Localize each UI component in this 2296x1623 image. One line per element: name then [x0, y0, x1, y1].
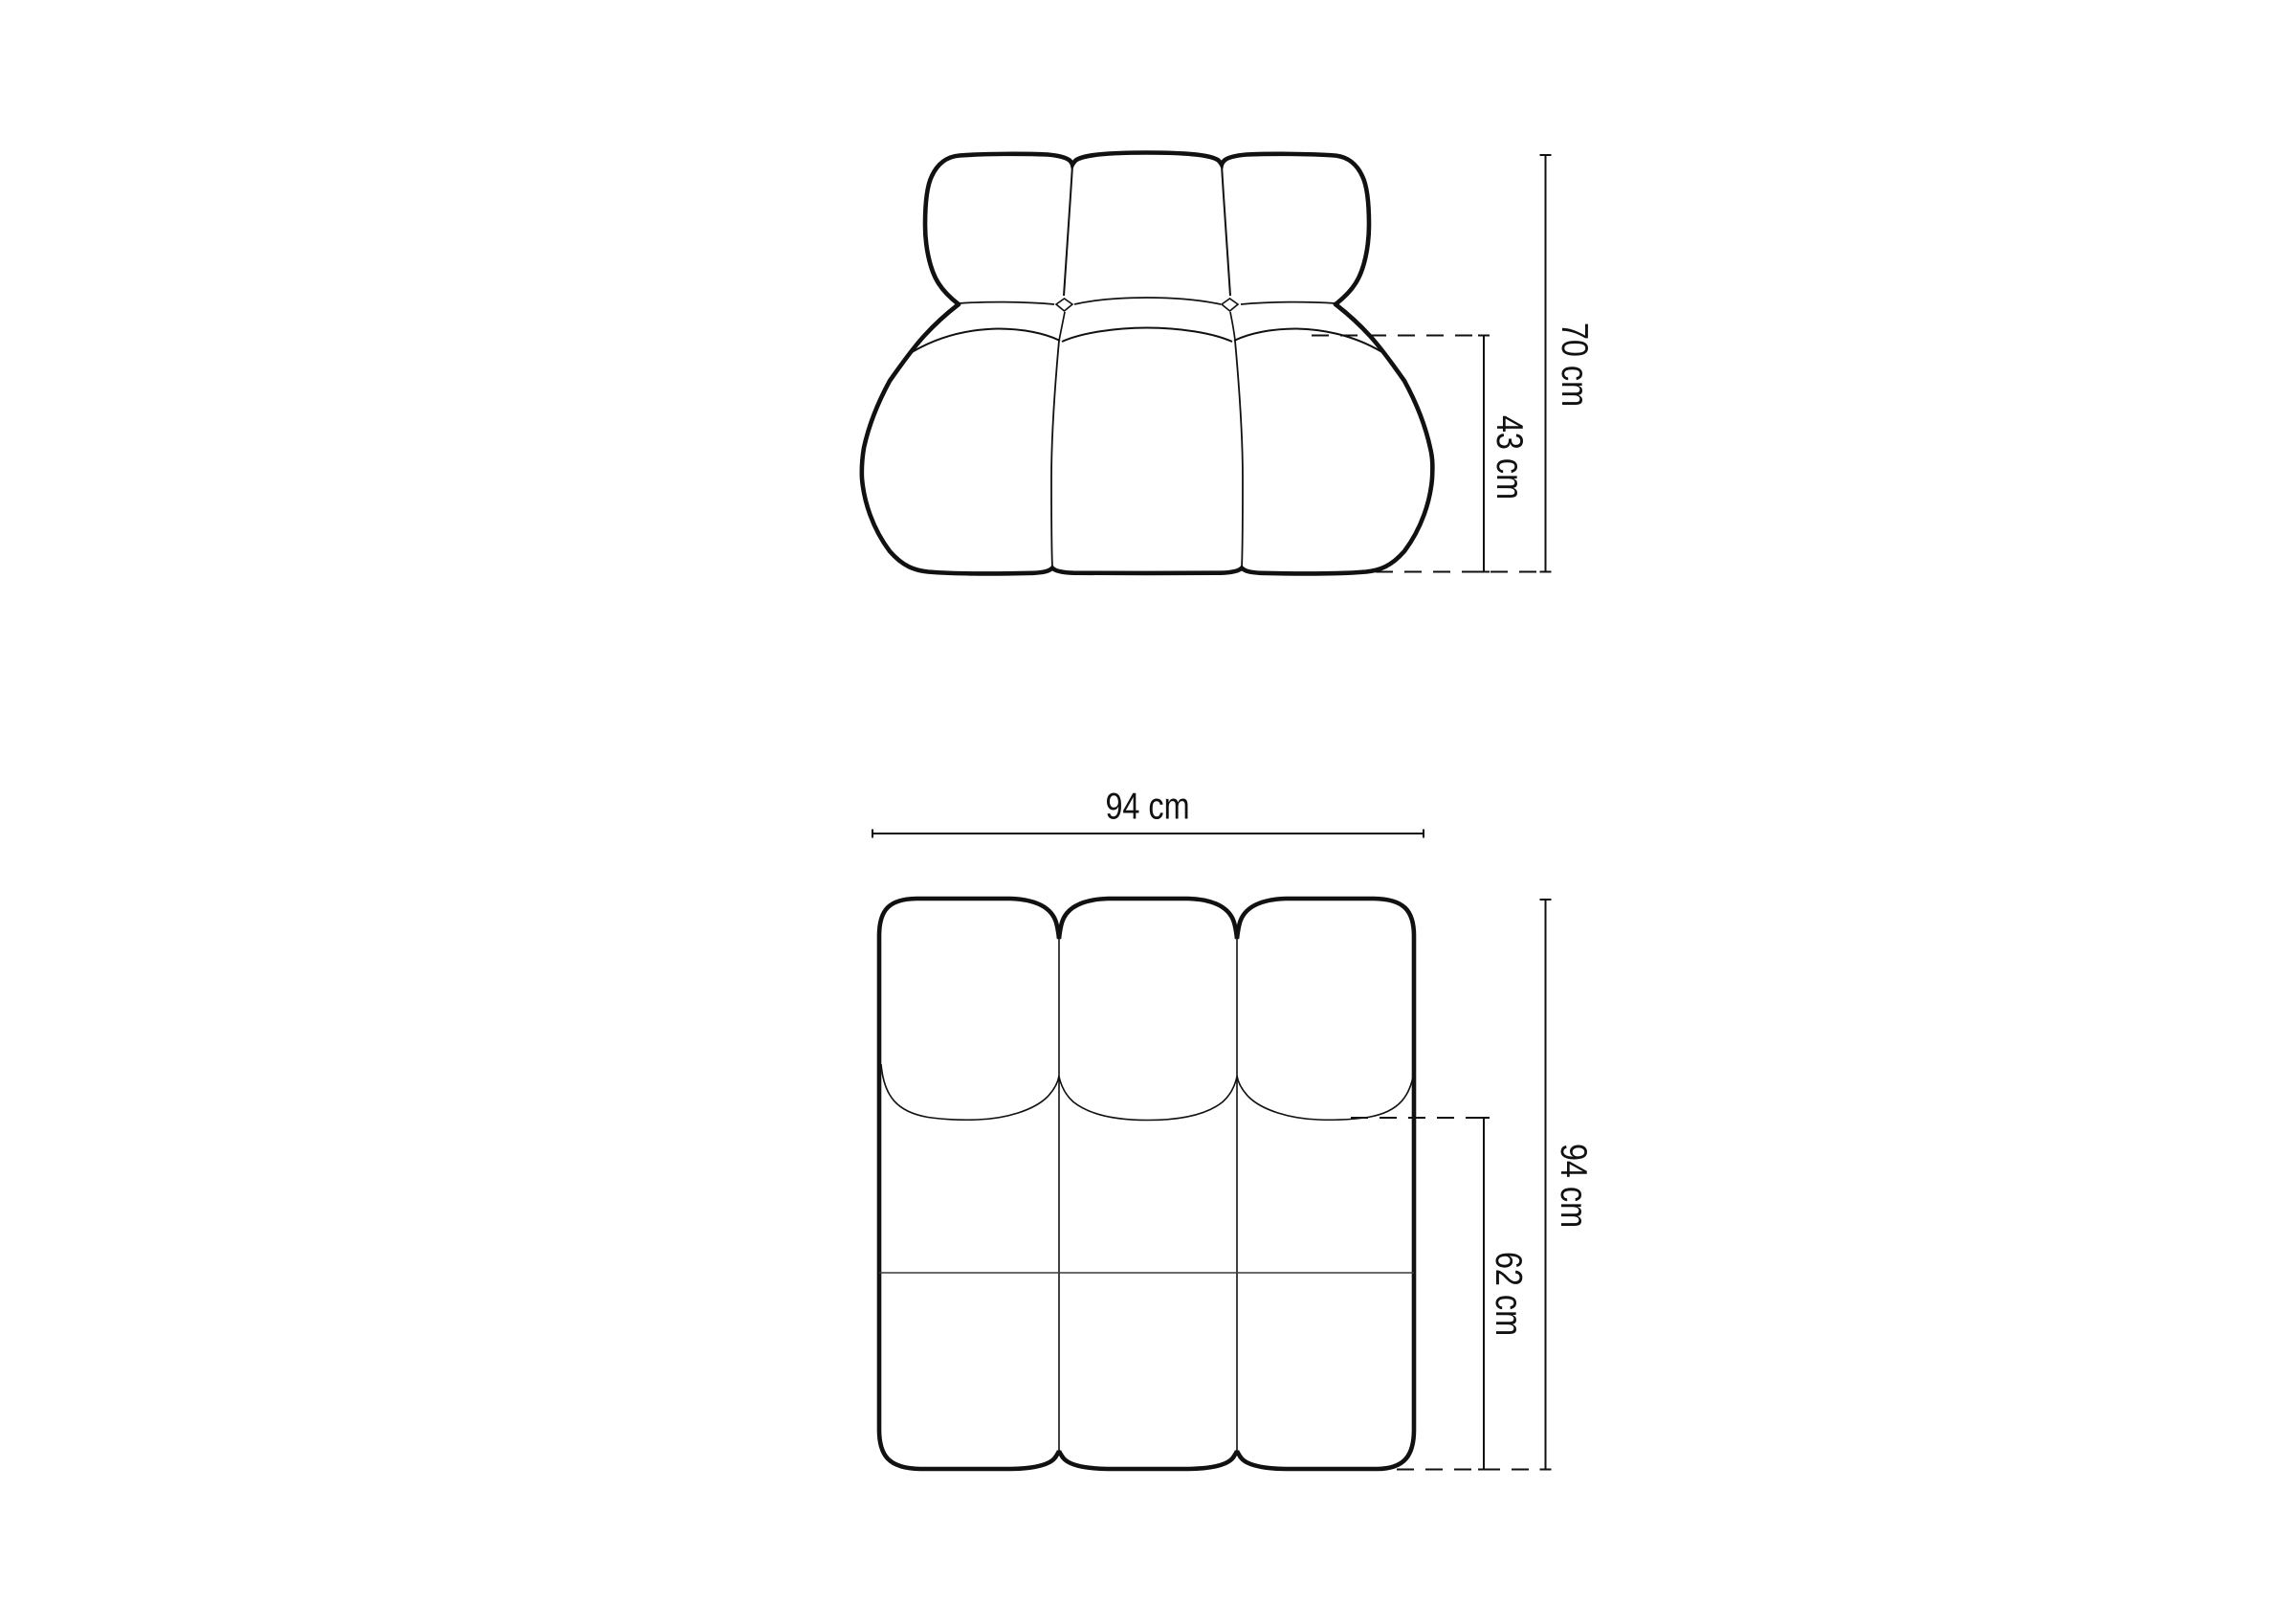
svg-text:94 cm: 94 cm: [1105, 786, 1189, 828]
svg-text:62 cm: 62 cm: [1488, 1252, 1530, 1336]
svg-text:70 cm: 70 cm: [1554, 322, 1596, 407]
svg-text:94 cm: 94 cm: [1553, 1144, 1595, 1228]
svg-text:43 cm: 43 cm: [1489, 415, 1531, 500]
